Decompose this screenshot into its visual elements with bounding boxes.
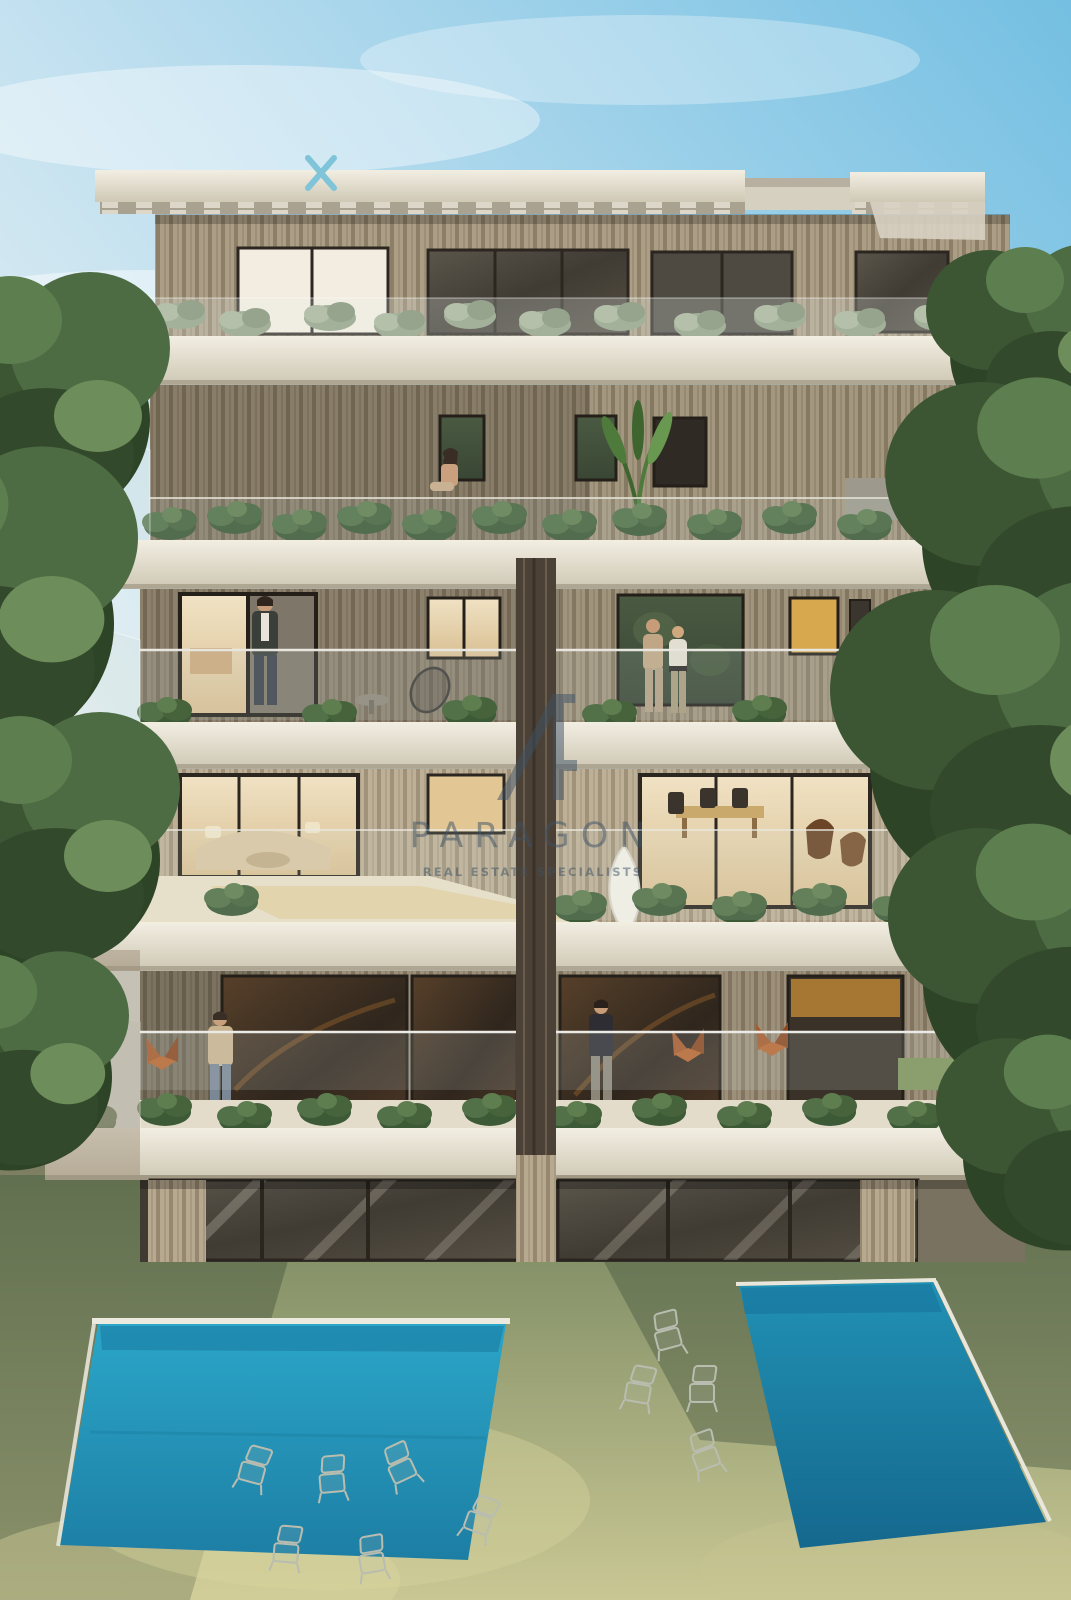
floor-3-window-lit [790, 598, 838, 654]
penthouse-glass-balustrade [95, 298, 1010, 340]
watermark-tagline: REAL ESTATE SPECIALISTS [423, 865, 644, 879]
ground-pillar [860, 1180, 915, 1262]
roof-slab-left [95, 170, 745, 202]
watermark-name: PARAGON [410, 816, 657, 856]
cloud [360, 15, 920, 105]
roof-slab-right [850, 172, 985, 202]
penthouse-level [94, 158, 1010, 340]
roof-recess-shadow [745, 178, 855, 187]
pool-right-shadow-band [741, 1284, 942, 1314]
pool-left-water [60, 1324, 506, 1560]
slab-edge [65, 380, 1010, 385]
slab-band-1 [65, 336, 1010, 384]
ground-floor [140, 1170, 1025, 1270]
central-pillar [516, 1155, 556, 1262]
building-rendering: PARAGON REAL ESTATE SPECIALISTS [0, 0, 1071, 1600]
glass-balustrade [140, 1032, 1025, 1090]
pool-left-shadow-band [100, 1326, 504, 1352]
window-glow [791, 979, 900, 1017]
ground-pillar [148, 1180, 206, 1262]
dining-table [676, 806, 764, 818]
glass-balustrade [150, 498, 1010, 540]
roof-side-return [870, 202, 985, 240]
pergola-beams [100, 200, 745, 214]
floor-4 [45, 385, 1010, 545]
pool-left [58, 1321, 510, 1560]
ground-shadow [140, 1180, 1025, 1189]
rendering-canvas: PARAGON REAL ESTATE SPECIALISTS [0, 0, 1071, 1600]
